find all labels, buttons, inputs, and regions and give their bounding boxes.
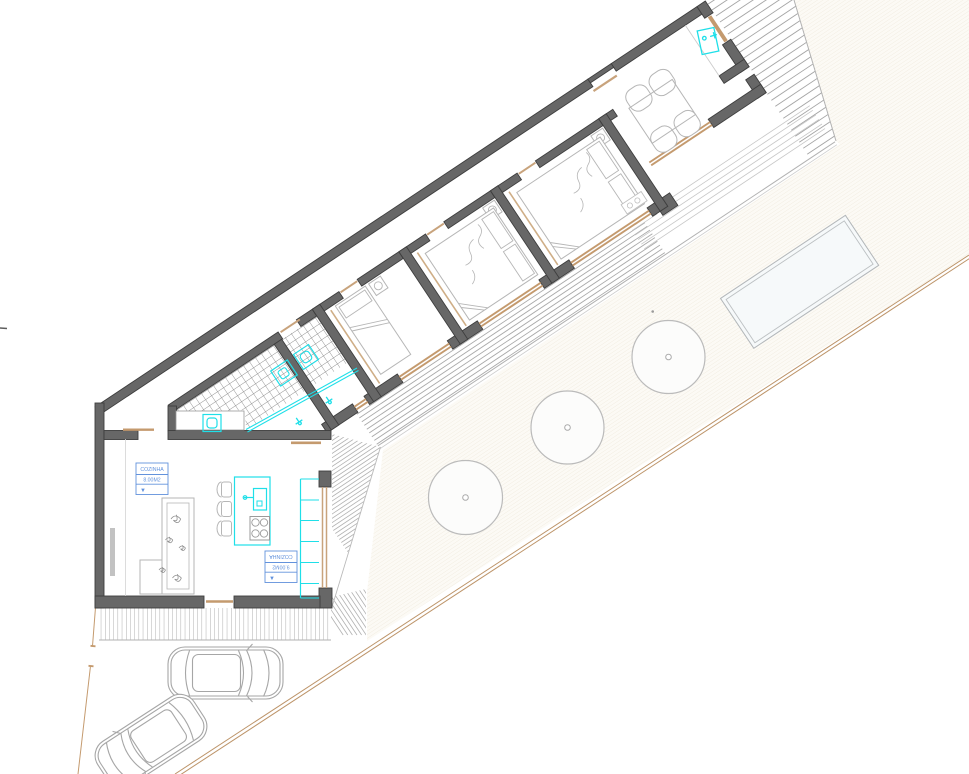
svg-text:▼: ▼: [269, 576, 275, 582]
svg-text:COZINHA: COZINHA: [140, 467, 164, 473]
svg-text:9.00M2: 9.00M2: [272, 563, 289, 569]
svg-text:▼: ▼: [140, 488, 146, 494]
svg-text:COZINHA: COZINHA: [269, 553, 293, 559]
svg-text:8.00M2: 8.00M2: [143, 477, 160, 483]
